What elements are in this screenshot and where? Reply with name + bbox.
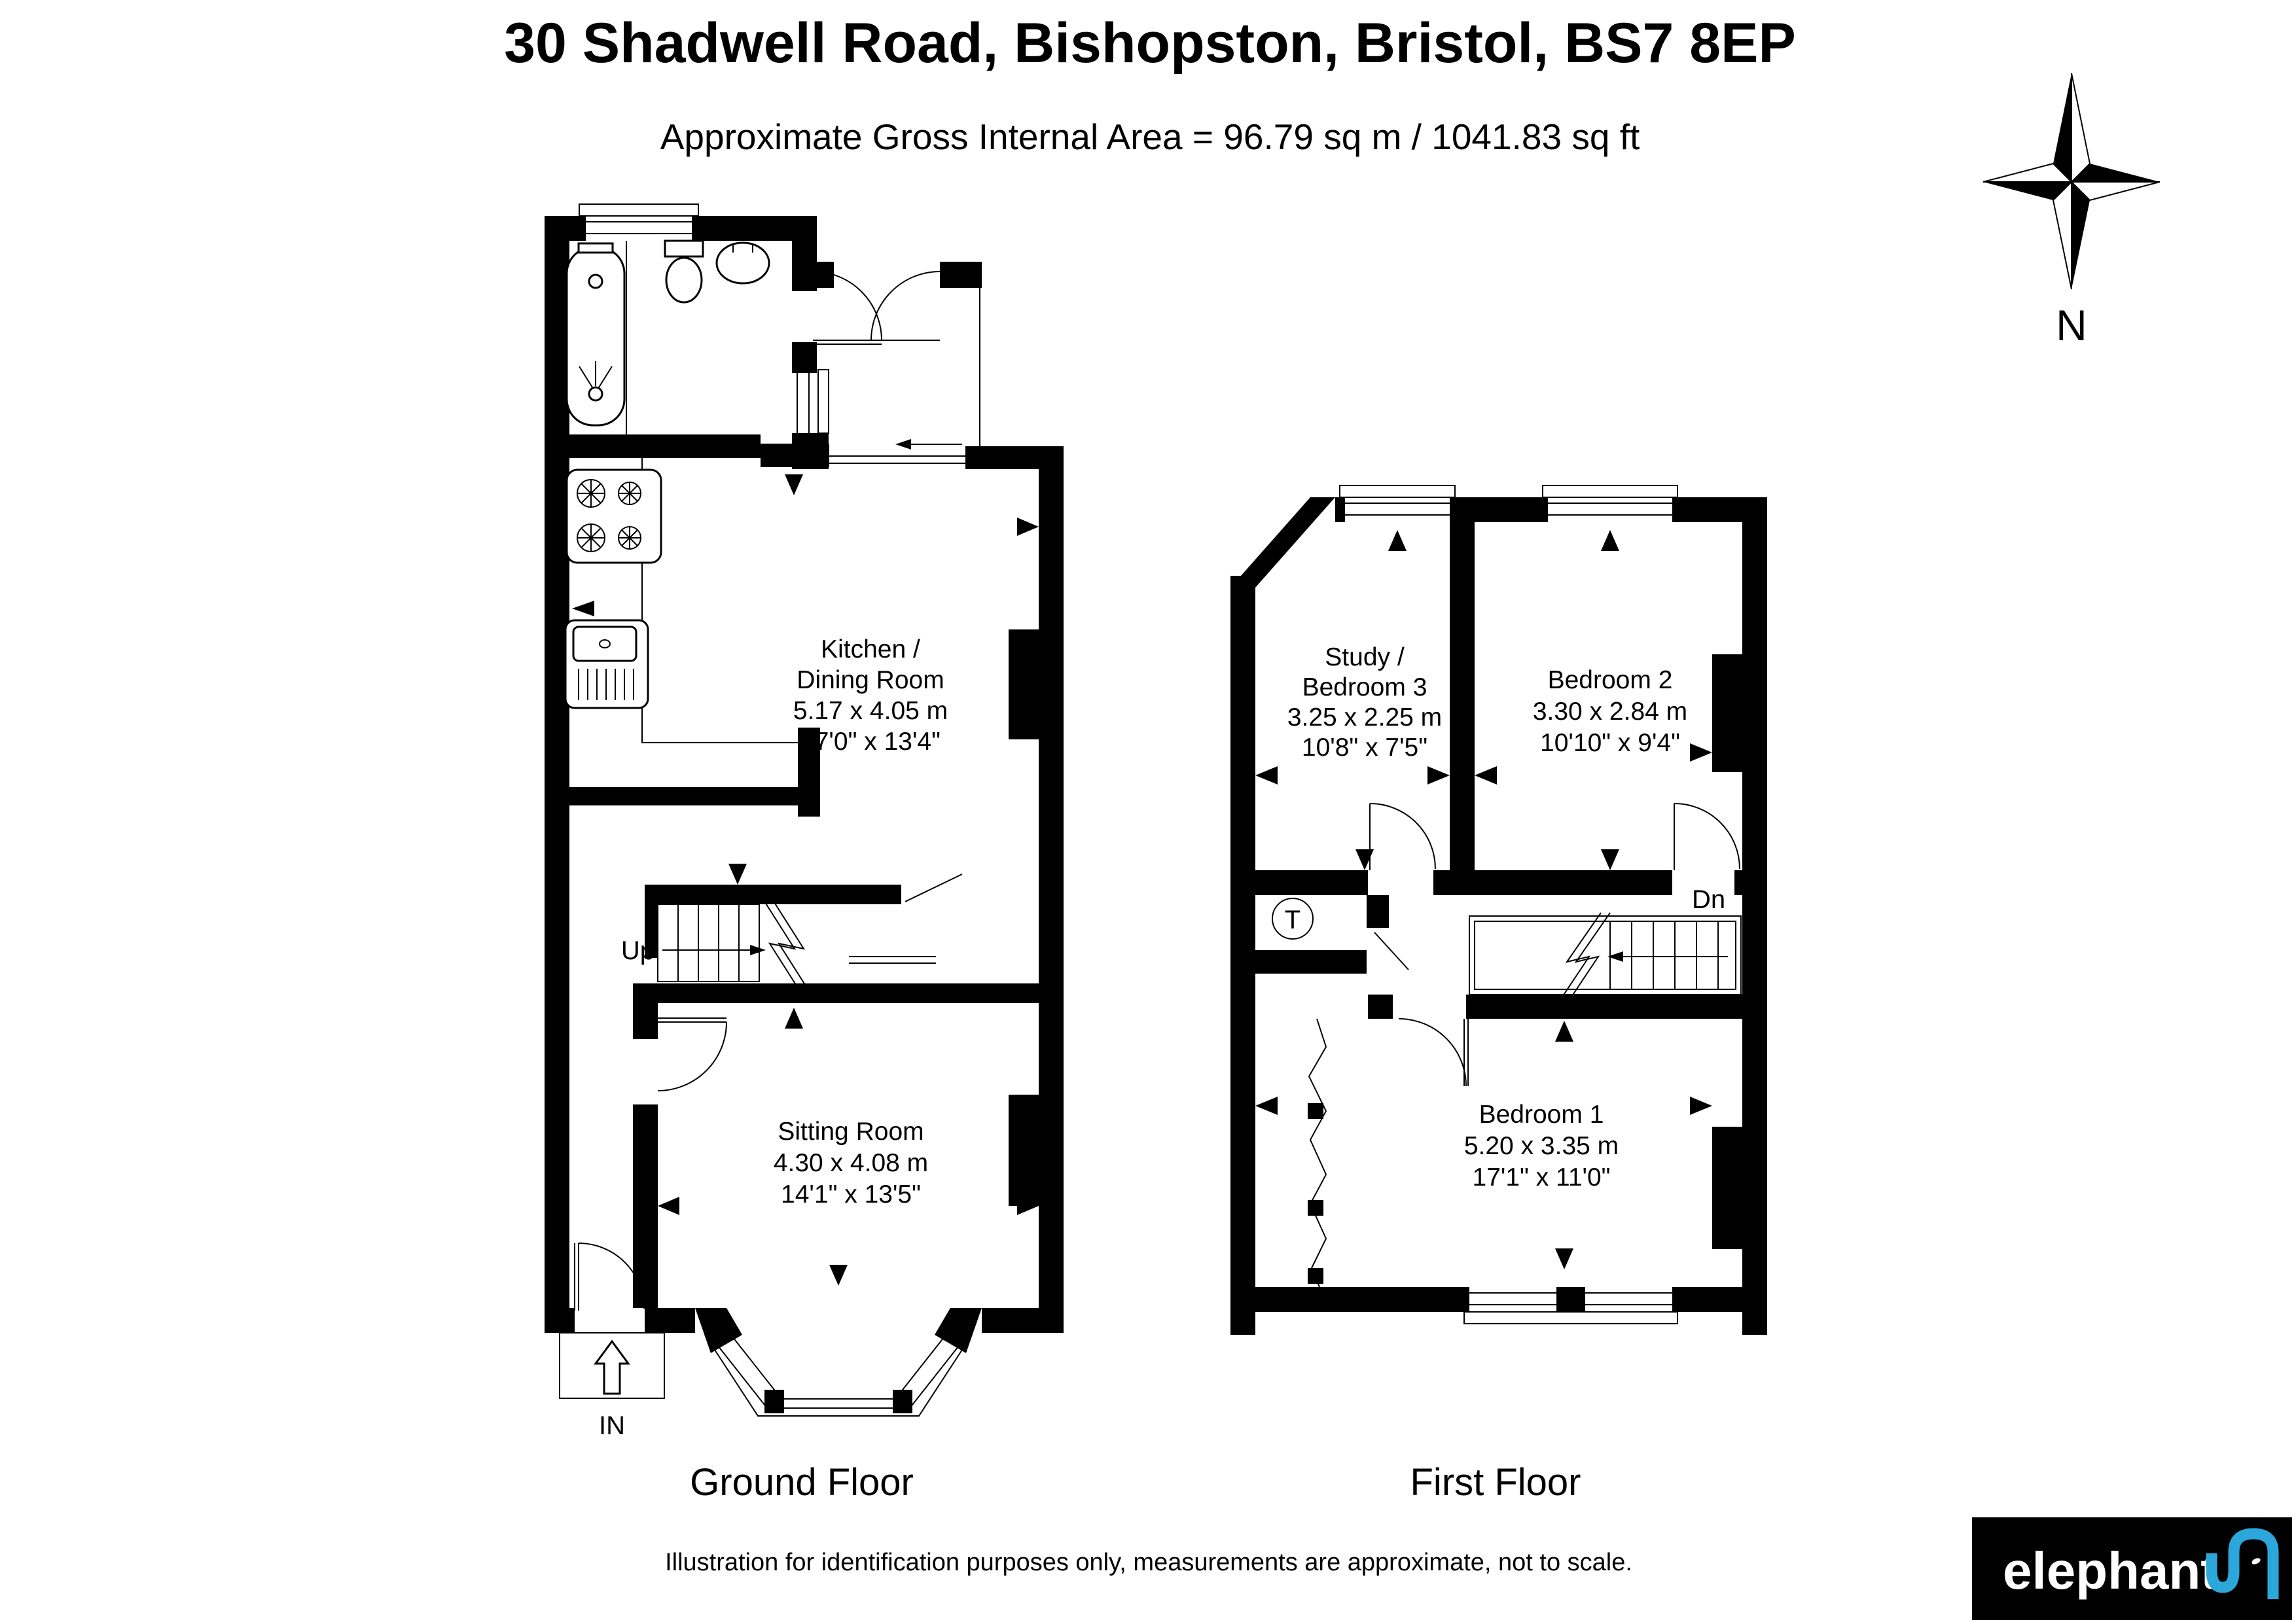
entrance-porch: IN [560, 1333, 664, 1440]
compass-e-north-half [2072, 164, 2160, 182]
compass-s-west-half [2053, 182, 2072, 289]
room-bedroom2 [1475, 522, 1712, 870]
cupboard-door-leaf [1374, 932, 1408, 970]
floorplan-canvas: 30 Shadwell Road, Bishopston, Bristol, B… [0, 0, 2296, 1624]
brand-logo: elephant [1972, 1517, 2292, 1620]
measure-arrow [572, 601, 594, 616]
bedroom2-chimney-breast [1712, 654, 1742, 772]
bedroom2-window [1543, 485, 1677, 497]
window-mullion [1556, 1287, 1585, 1312]
stairs-break-line [759, 893, 805, 999]
entrance-in-label: IN [599, 1411, 625, 1440]
sink-bowl [573, 627, 636, 661]
stairs-outline [658, 904, 759, 981]
measure-arrow [1255, 1097, 1278, 1115]
rear-direction-arrow [895, 439, 911, 450]
measure-arrow [728, 864, 747, 885]
study-window [1340, 485, 1455, 497]
stairs-outline [1469, 916, 1741, 995]
stairs-up-arrow [750, 945, 766, 955]
room-study-bedroom3 [1255, 522, 1450, 870]
bedroom1-window [1464, 1312, 1677, 1324]
page-subtitle: Approximate Gross Internal Area = 96.79 … [660, 116, 1640, 157]
compass-rose-icon: N [1983, 73, 2160, 349]
room-sitting [658, 1003, 1039, 1308]
compass-north-label: N [2056, 301, 2087, 349]
room-bathroom [569, 241, 792, 434]
room-kitchen-dining [642, 469, 1039, 787]
bedroom1-chimney-breast [1712, 1127, 1742, 1249]
floorplan-page: 30 Shadwell Road, Bishopston, Bristol, B… [0, 0, 2296, 1624]
staircase-down: Dn [1469, 885, 1741, 1008]
compass-w-south-half [1983, 182, 2072, 200]
compass-n-east-half [2072, 73, 2090, 182]
tank-label: T [1285, 906, 1300, 934]
disclaimer-text: Illustration for identification purposes… [665, 1549, 1632, 1576]
entrance-in-arrow [596, 1341, 628, 1394]
page-title: 30 Shadwell Road, Bishopston, Bristol, B… [504, 12, 1796, 75]
compass-s-east-half [2072, 182, 2090, 289]
kitchen-door-leaf [905, 874, 962, 902]
room-bedroom1 [1393, 1019, 1712, 1287]
bay-window [695, 1308, 982, 1416]
hall-window [818, 370, 829, 433]
recess-partition [1308, 1019, 1326, 1287]
stairs-up-label: Up [621, 936, 655, 965]
first-floor-label: First Floor [1410, 1461, 1581, 1504]
logo-brand-text: elephant [2003, 1542, 2218, 1600]
bathroom-window [579, 204, 698, 216]
stairs-down-label: Dn [1692, 885, 1725, 914]
ground-floor-label: Ground Floor [690, 1461, 914, 1504]
tank-cupboard: T [1272, 898, 1313, 939]
